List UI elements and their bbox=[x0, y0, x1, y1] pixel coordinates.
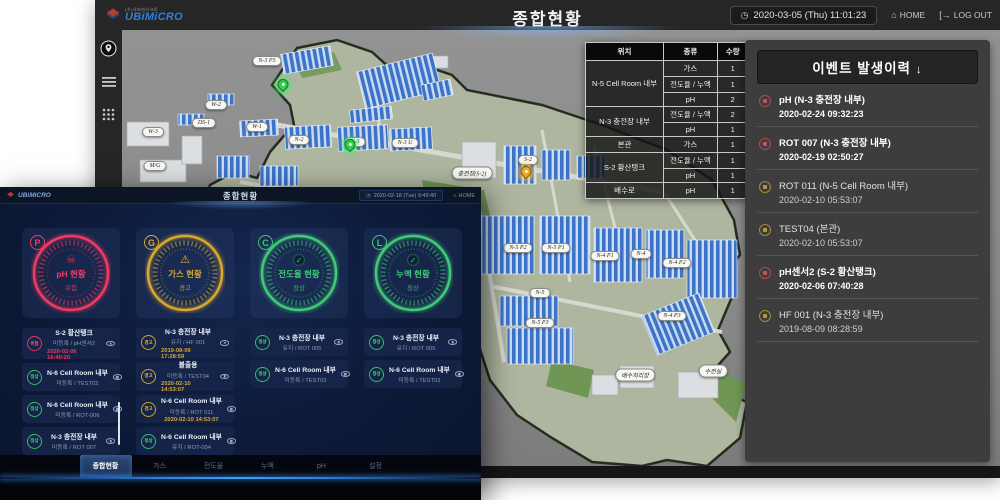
status-badge: 정상 bbox=[255, 335, 270, 350]
sensor-item[interactable]: 정상 N-6 Cell Room 내부 미등록 / TEST02 bbox=[22, 363, 120, 391]
gauge-letter: P bbox=[30, 235, 45, 250]
top-bar: UBiMiCRO 종합현황 ◷ 2020-02-18 (Tue) 9:49:40… bbox=[0, 187, 481, 204]
view-detail-icon[interactable] bbox=[448, 339, 457, 345]
gauge-title: 누액 현황 bbox=[396, 268, 430, 280]
tab-settings[interactable]: 설정 bbox=[350, 455, 402, 477]
gauge-status: 정상 bbox=[407, 282, 419, 292]
clock-icon: ◷ bbox=[741, 10, 749, 21]
warning-level-icon bbox=[759, 224, 771, 236]
logout-button[interactable]: [→ LOG OUT bbox=[939, 10, 992, 20]
map-label: DS-1 bbox=[192, 118, 216, 128]
logout-icon: [→ bbox=[939, 10, 951, 20]
gauge-letter: L bbox=[372, 235, 387, 250]
event-item[interactable]: HF 001 (N-3 충전장 내부) 2019-08-09 08:28:59 bbox=[757, 299, 978, 342]
event-item[interactable]: ROT 007 (N-3 충전장 내부) 2020-02-19 02:50:27 bbox=[757, 127, 978, 170]
view-detail-icon[interactable] bbox=[220, 340, 229, 346]
col-type: 종류 bbox=[664, 43, 718, 61]
ok-check-icon: ✓ bbox=[293, 254, 305, 266]
col-location: 위치 bbox=[586, 43, 664, 61]
status-badge: 정상 bbox=[27, 434, 42, 449]
map-label: N-2 bbox=[289, 135, 310, 145]
map-label: N-4 P1 bbox=[590, 251, 619, 261]
event-item[interactable]: pH (N-3 충전장 내부) 2020-02-24 09:32:23 bbox=[757, 84, 978, 127]
skull-icon: ☠ bbox=[66, 255, 76, 266]
table-row: S-2 황산탱크 전도율 / 누액 1 bbox=[586, 153, 749, 169]
map-label: N-5 P1 bbox=[541, 243, 570, 253]
sensor-item[interactable]: 정상 N-6 Cell Room 내부 유지 / ROT-004 bbox=[136, 427, 234, 455]
sensor-item[interactable]: 정상 N-3 충전장 내부 유지 / ROT 005 bbox=[250, 328, 348, 356]
alarm-level-icon bbox=[759, 95, 771, 107]
home-icon: ⌂ bbox=[891, 10, 896, 20]
view-detail-icon[interactable] bbox=[220, 374, 229, 380]
gauge-status: 위험 bbox=[65, 282, 77, 292]
home-label: HOME bbox=[900, 10, 926, 20]
map-label: 충전장(S-2) bbox=[452, 167, 493, 180]
sort-desc-icon: ↓ bbox=[916, 62, 923, 76]
status-badge: 정상 bbox=[27, 370, 42, 385]
status-badge: 경고 bbox=[141, 402, 156, 417]
list-scrollbar[interactable] bbox=[118, 402, 121, 445]
map-label: N-4 P3 bbox=[657, 311, 686, 321]
view-detail-icon[interactable] bbox=[227, 406, 236, 412]
event-item[interactable]: pH센서2 (S-2 황산탱크) 2020-02-06 07:40:28 bbox=[757, 256, 978, 299]
home-icon: ⌂ bbox=[453, 193, 456, 199]
status-badge: 경고 bbox=[141, 335, 156, 350]
table-row: N-3 충전장 내부 전도율 / 누액 2 bbox=[586, 107, 749, 123]
conductivity-sensor-list: 정상 N-3 충전장 내부 유지 / ROT 005 정상 N-6 Cell R… bbox=[250, 328, 348, 455]
ok-check-icon: ✓ bbox=[407, 254, 419, 266]
alarm-level-icon bbox=[759, 138, 771, 150]
status-badge: 정상 bbox=[27, 402, 42, 417]
brand-logo: (주)유비마이크로 UBiMiCRO bbox=[95, 7, 183, 23]
sensor-item[interactable]: 정상 N-3 충전장 내부 유지 / ROT 005 bbox=[364, 328, 462, 356]
map-label: W-3 bbox=[142, 127, 164, 137]
grid-apps-icon[interactable] bbox=[100, 106, 117, 123]
sensor-item[interactable]: 경고 N-3 충전장 내부 유지 / HF 001 2019-08-09 17:… bbox=[136, 328, 234, 358]
sensor-item[interactable]: 정상 N-6 Cell Room 내부 미등록 / TEST03 bbox=[364, 360, 462, 388]
map-label: N-4 bbox=[631, 249, 652, 259]
sensor-item[interactable]: 정상 N-3 충전장 내부 미등록 / ROT 007 bbox=[22, 427, 120, 455]
gauge-letter: G bbox=[144, 235, 159, 250]
map-label: N-5 P3 bbox=[525, 318, 554, 328]
status-badge: 정상 bbox=[141, 434, 156, 449]
sensor-item[interactable]: 경고 불출용 미등록 / TEST04 2020-02-10 14:53:07 bbox=[136, 362, 234, 392]
table-row: 본관 가스 1 bbox=[586, 137, 749, 153]
brand-name: UBiMiCRO bbox=[125, 12, 183, 23]
ubimicro-logo-icon bbox=[105, 7, 121, 23]
map-label: W-2 bbox=[205, 100, 227, 110]
map-label: W-1 bbox=[246, 122, 268, 132]
map-label: N-3 U bbox=[392, 138, 419, 148]
status-dashboard-window: UBiMiCRO 종합현황 ◷ 2020-02-18 (Tue) 9:49:40… bbox=[0, 187, 481, 500]
tab-gas[interactable]: 가스 bbox=[134, 455, 186, 477]
tab-overview[interactable]: 종합현황 bbox=[80, 455, 132, 477]
view-detail-icon[interactable] bbox=[455, 371, 464, 377]
map-label: 수전실 bbox=[699, 365, 728, 378]
view-detail-icon[interactable] bbox=[106, 438, 115, 444]
sensor-item[interactable]: 경고 N-6 Cell Room 내부 미등록 / ROT 011 2020-0… bbox=[136, 395, 234, 423]
gauge-conductivity[interactable]: C ✓ 전도율 현황 정상 bbox=[250, 228, 348, 318]
ubimicro-logo-icon bbox=[6, 191, 15, 200]
datetime-display: ◷ 2020-02-18 (Tue) 9:49:40 bbox=[359, 190, 443, 201]
gauge-title: 전도율 현황 bbox=[278, 268, 319, 280]
view-detail-icon[interactable] bbox=[341, 371, 350, 377]
gauge-title: pH 현황 bbox=[56, 268, 85, 280]
title-glow bbox=[166, 201, 316, 210]
gauge-title: 가스 현황 bbox=[168, 268, 202, 280]
table-row: N-5 Cell Room 내부 가스 1 bbox=[586, 61, 749, 77]
map-label: N-5 P2 bbox=[503, 243, 532, 253]
datetime-text: 2020-03-05 (Thu) 11:01:23 bbox=[753, 10, 866, 21]
tab-ph[interactable]: pH bbox=[296, 455, 348, 477]
alarm-level-icon bbox=[759, 267, 771, 279]
window-bottom-strip bbox=[0, 477, 481, 500]
gas-sensor-list: 경고 N-3 충전장 내부 유지 / HF 001 2019-08-09 17:… bbox=[136, 328, 234, 455]
table-row: 배수로 pH 1 bbox=[586, 183, 749, 199]
warning-icon: ⚠ bbox=[180, 255, 190, 266]
status-badge: 정상 bbox=[369, 335, 384, 350]
gauge-status: 정상 bbox=[293, 282, 305, 292]
view-detail-icon[interactable] bbox=[334, 339, 343, 345]
event-history-panel: 이벤트 발생이력 ↓ pH (N-3 충전장 내부) 2020-02-24 09… bbox=[745, 40, 990, 462]
map-label: N-5 bbox=[530, 288, 551, 298]
warning-level-icon bbox=[759, 181, 771, 193]
clock-icon: ◷ bbox=[366, 193, 371, 199]
brand-name: UBiMiCRO bbox=[18, 192, 51, 199]
sensor-item[interactable]: 정상 N-6 Cell Room 내부 미등록 / ROT-006 bbox=[22, 395, 120, 423]
home-button[interactable]: ⌂ HOME bbox=[453, 193, 475, 199]
leak-sensor-list: 정상 N-3 충전장 내부 유지 / ROT 005 정상 N-6 Cell R… bbox=[364, 328, 462, 455]
warning-level-icon bbox=[759, 310, 771, 322]
map-label: M/G bbox=[144, 161, 167, 171]
datetime-display: ◷ 2020-03-05 (Thu) 11:01:23 bbox=[730, 6, 878, 25]
gauge-letter: C bbox=[258, 235, 273, 250]
gauge-status: 경고 bbox=[179, 282, 191, 292]
status-badge: 경고 bbox=[141, 369, 156, 384]
menu-list-icon[interactable] bbox=[100, 73, 117, 90]
gauge-ph[interactable]: P ☠ pH 현황 위험 bbox=[22, 228, 120, 318]
bottom-tab-bar: 종합현황 가스 전도율 누액 pH 설정 bbox=[0, 455, 481, 477]
event-item[interactable]: ROT 011 (N-5 Cell Room 내부) 2020-02-10 05… bbox=[757, 170, 978, 213]
gauge-gas[interactable]: G ⚠ 가스 현황 경고 bbox=[136, 228, 234, 318]
col-count: 수량 bbox=[717, 43, 748, 61]
map-pin-tool-icon[interactable] bbox=[100, 40, 117, 57]
status-badge: 위험 bbox=[27, 336, 42, 351]
ph-sensor-list: 위험 S-2 황산탱크 미등록 / pH센서2 2020-02-06 16:40… bbox=[22, 328, 120, 455]
status-badge: 정상 bbox=[255, 367, 270, 382]
status-badge: 정상 bbox=[369, 367, 384, 382]
view-detail-icon[interactable] bbox=[227, 438, 236, 444]
page-title: 종합현황 bbox=[512, 5, 583, 30]
map-label: 배수처리장 bbox=[615, 369, 655, 382]
tab-leak[interactable]: 누액 bbox=[242, 455, 294, 477]
top-bar: (주)유비마이크로 UBiMiCRO 종합현황 ◷ 2020-03-05 (Th… bbox=[95, 0, 1000, 30]
tab-conductivity[interactable]: 전도율 bbox=[188, 455, 240, 477]
event-item[interactable]: TEST04 (본관) 2020-02-10 05:53:07 bbox=[757, 213, 978, 256]
gauge-leak[interactable]: L ✓ 누액 현황 정상 bbox=[364, 228, 462, 318]
home-button[interactable]: ⌂ HOME bbox=[891, 10, 925, 20]
view-detail-icon[interactable] bbox=[113, 374, 122, 380]
logout-label: LOG OUT bbox=[954, 10, 992, 20]
map-label: N-4 P2 bbox=[662, 258, 691, 268]
sensor-item[interactable]: 정상 N-6 Cell Room 내부 미등록 / TEST03 bbox=[250, 360, 348, 388]
event-panel-title[interactable]: 이벤트 발생이력 ↓ bbox=[757, 50, 978, 84]
map-label: N-3 P5 bbox=[252, 56, 281, 66]
view-detail-icon[interactable] bbox=[106, 341, 115, 347]
sensor-item[interactable]: 위험 S-2 황산탱크 미등록 / pH센서2 2020-02-06 16:40… bbox=[22, 328, 120, 359]
brand-logo: UBiMiCRO bbox=[0, 191, 51, 200]
sensor-summary-table: 위치 종류 수량 N-5 Cell Room 내부 가스 1 전도율 / 누액 … bbox=[585, 42, 749, 199]
map-label: S-2 bbox=[518, 155, 538, 165]
